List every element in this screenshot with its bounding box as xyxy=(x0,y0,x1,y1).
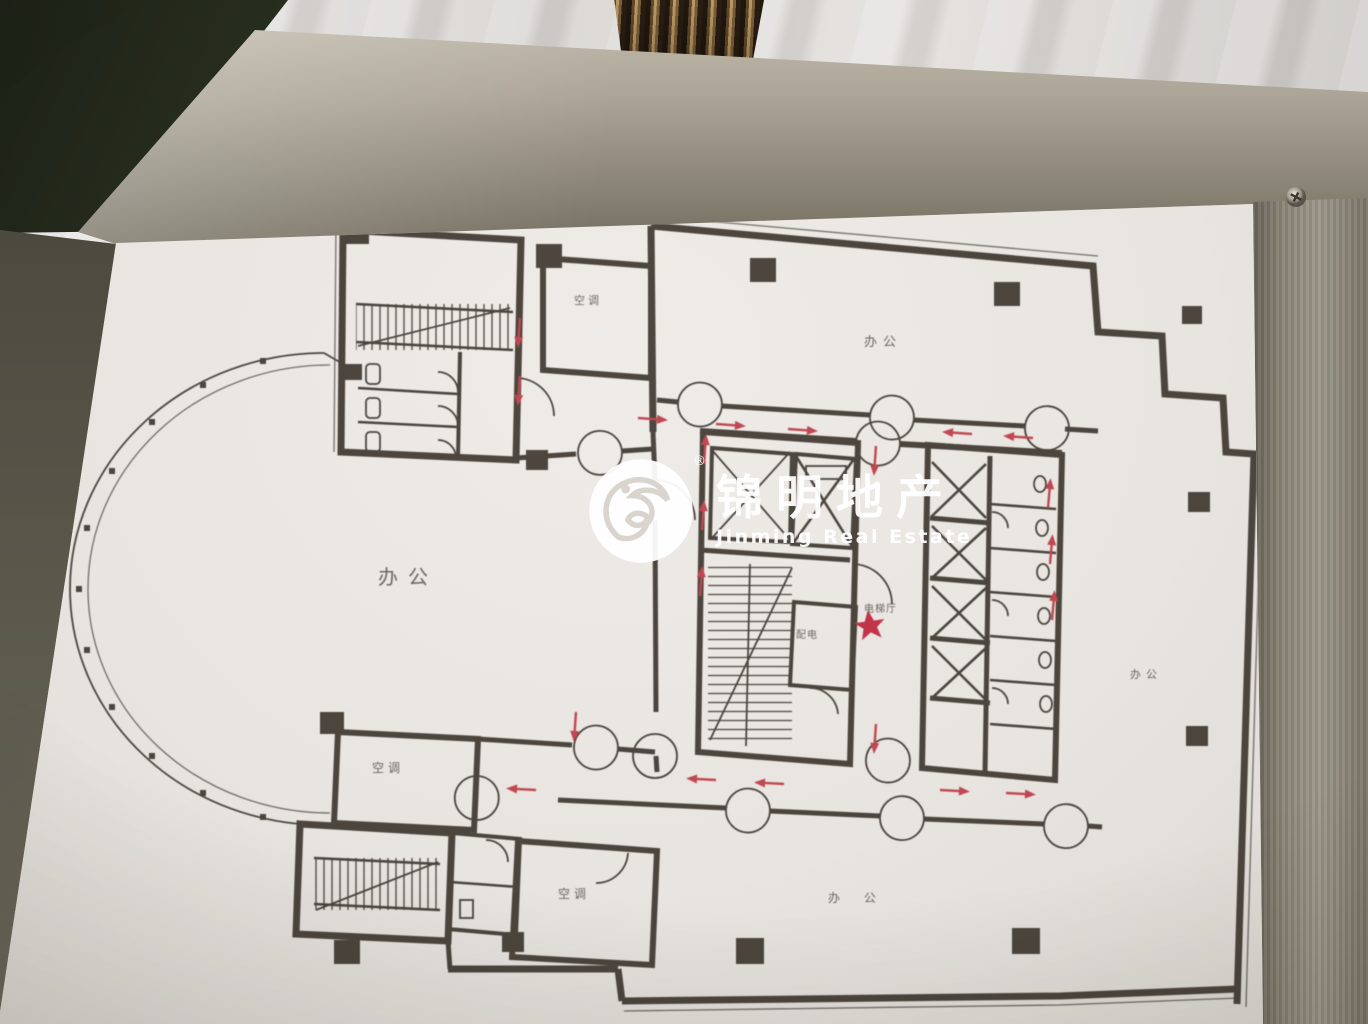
bottom-outer-wall xyxy=(448,941,1239,1011)
stair-block-bottom xyxy=(296,824,452,941)
photo-of-framed-floor-plan: 办公 办公 办公 办 公 空调 空调 空调 配电 电梯厅 ® xyxy=(0,0,1368,1024)
stair-wc-block-top-left xyxy=(334,224,554,460)
label-office-left: 办公 xyxy=(378,565,438,589)
label-power-room: 配电 xyxy=(796,628,818,641)
small-room-bottom xyxy=(448,833,520,935)
watermark: ® 锦明地产 Jinming Real Estate xyxy=(586,456,972,566)
label-hvac-top: 空调 xyxy=(574,293,602,307)
watermark-text: 锦明地产 Jinming Real Estate xyxy=(716,474,972,548)
label-hvac-mid: 空调 xyxy=(372,761,404,775)
label-office-bottom: 办 公 xyxy=(828,890,886,905)
label-hvac-bottom: 空调 xyxy=(558,887,590,901)
top-corridor-wall xyxy=(657,381,1098,451)
label-office-right: 办公 xyxy=(1130,668,1162,681)
registered-mark: ® xyxy=(693,454,706,469)
screw-icon xyxy=(1283,184,1309,210)
hvac-room-top xyxy=(543,258,651,378)
hvac-room-mid xyxy=(334,732,500,830)
brand-name-en: Jinming Real Estate xyxy=(716,526,972,548)
brand-name-cn: 锦明地产 xyxy=(716,474,972,523)
curved-facade xyxy=(70,353,343,825)
watermark-logo-icon: ® xyxy=(586,456,696,566)
label-elevator-hall: 电梯厅 xyxy=(864,602,897,615)
bottom-corridor-wall xyxy=(558,787,1102,849)
label-office-top: 办公 xyxy=(864,335,902,350)
hvac-room-bottom xyxy=(512,841,657,965)
floor-plan-drawing: 办公 办公 办公 办 公 空调 空调 空调 配电 电梯厅 xyxy=(40,212,1264,1018)
